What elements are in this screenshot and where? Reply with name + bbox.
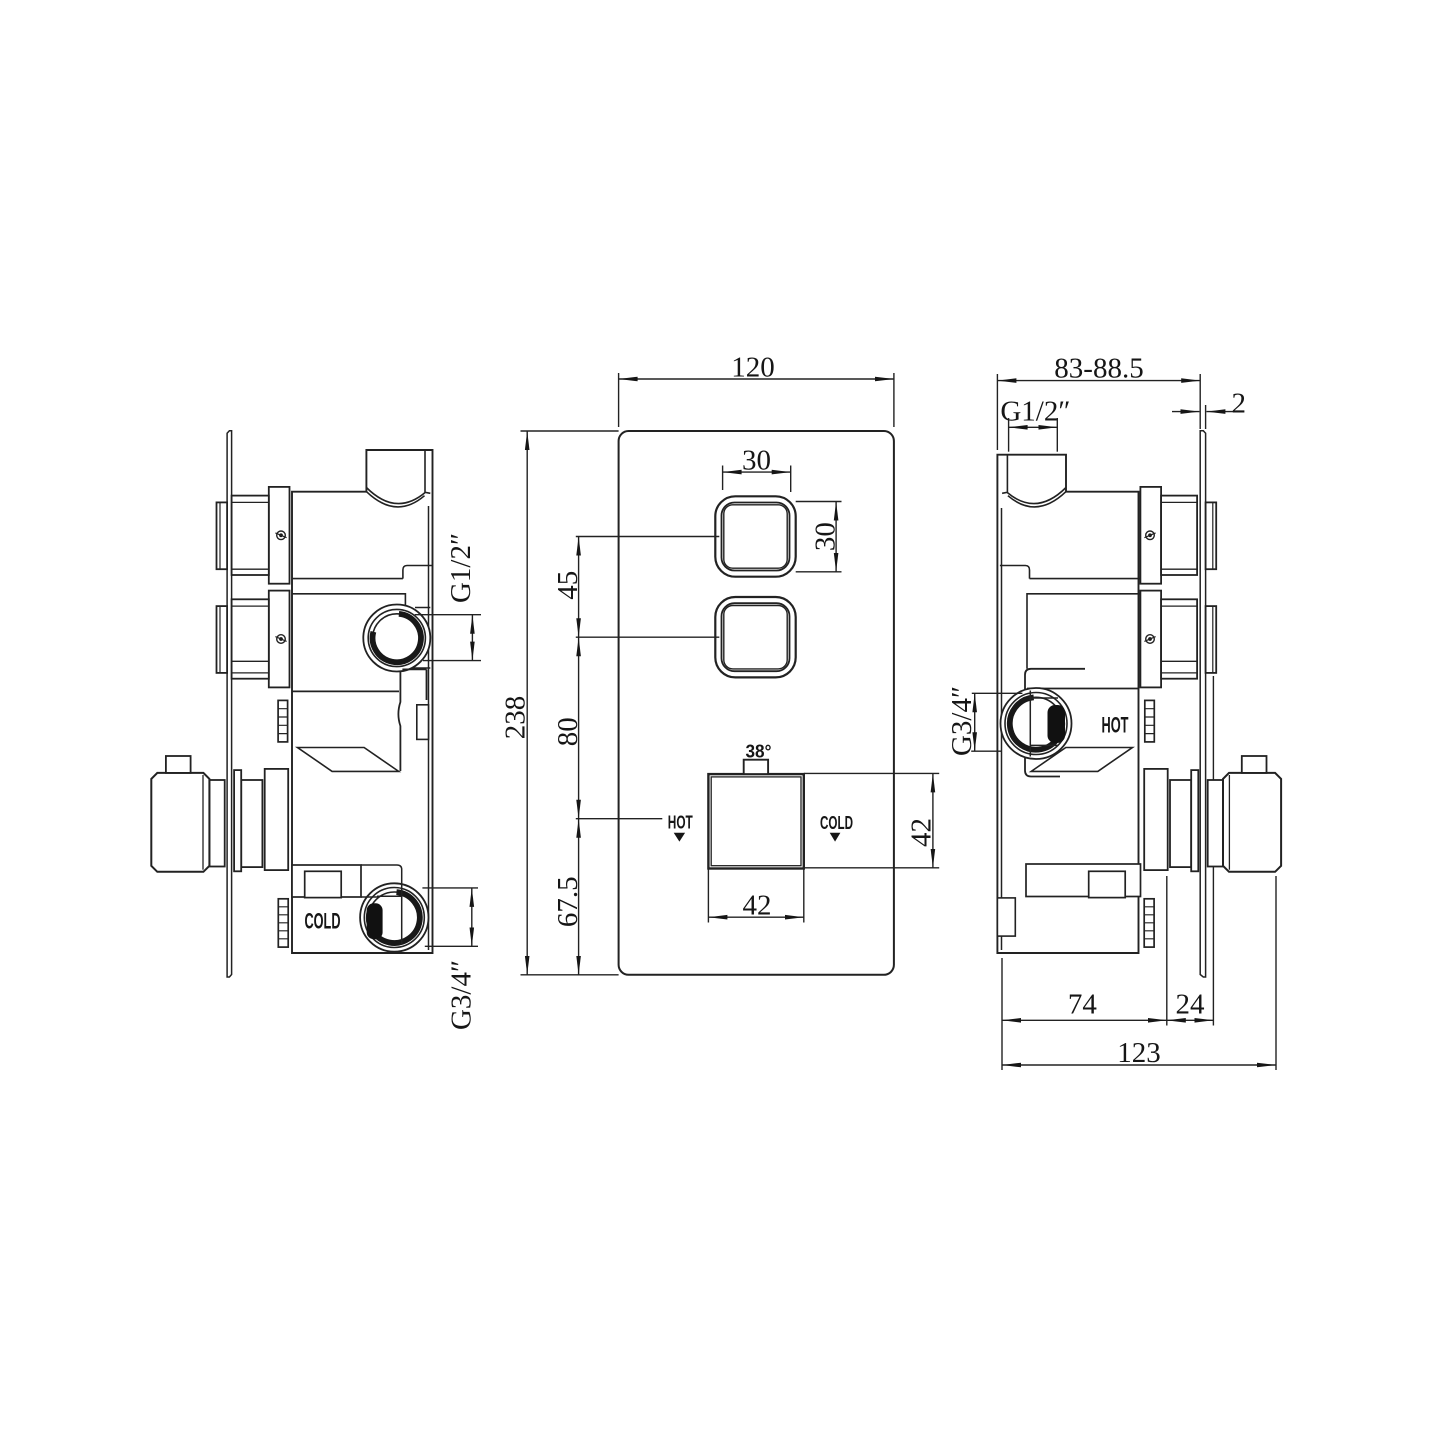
svg-text:74: 74: [1068, 989, 1098, 1021]
svg-text:123: 123: [1117, 1037, 1161, 1069]
svg-text:80: 80: [552, 717, 584, 746]
svg-text:45: 45: [552, 571, 584, 600]
svg-text:38°: 38°: [746, 741, 772, 761]
svg-text:COLD: COLD: [820, 813, 853, 833]
svg-text:120: 120: [731, 352, 775, 384]
svg-text:238: 238: [500, 696, 532, 740]
svg-text:30: 30: [810, 522, 842, 551]
svg-text:G3/4″: G3/4″: [946, 686, 978, 756]
svg-text:67.5: 67.5: [552, 876, 584, 927]
svg-text:42: 42: [743, 890, 772, 922]
svg-text:42: 42: [906, 818, 938, 847]
svg-text:G3/4″: G3/4″: [446, 960, 478, 1030]
svg-text:24: 24: [1176, 989, 1206, 1021]
svg-text:HOT: HOT: [668, 813, 693, 833]
svg-text:2: 2: [1231, 387, 1246, 419]
svg-text:HOT: HOT: [1102, 713, 1129, 738]
svg-text:30: 30: [742, 444, 771, 476]
svg-text:COLD: COLD: [305, 909, 341, 934]
svg-text:83-88.5: 83-88.5: [1054, 353, 1143, 385]
svg-text:G1/2″: G1/2″: [445, 533, 477, 603]
svg-text:G1/2″: G1/2″: [1000, 396, 1070, 428]
